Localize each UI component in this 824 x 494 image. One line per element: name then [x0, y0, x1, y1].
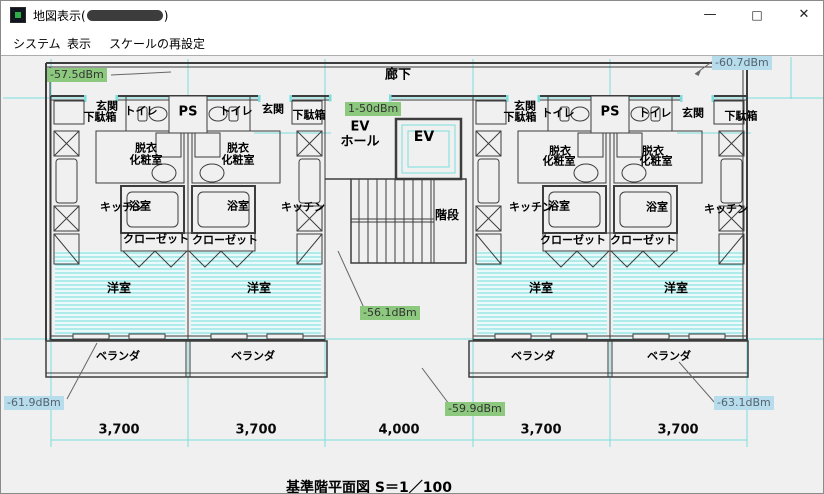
dimension-3: 4,000: [378, 423, 419, 438]
unit2-kitchen-label: キッチン: [281, 202, 325, 213]
unit4-kesho-label: 化粧室: [640, 156, 673, 167]
unit2-getabako-label: 下駄箱: [293, 110, 326, 121]
apartment-units: [51, 95, 747, 341]
verandas: [46, 341, 748, 377]
ev-shaft: [396, 119, 461, 179]
sheet-title: 基準階平面図 S＝1／100: [286, 477, 452, 494]
corridor-label: 廊下: [385, 69, 411, 82]
unit3-kesho-label: 化粧室: [543, 156, 576, 167]
window-title: 地図表示(): [33, 7, 168, 24]
unit4-toilet-label: トイレ: [639, 108, 672, 119]
unit4-closet-label: クローゼット: [610, 235, 676, 246]
dimension-5: 3,700: [657, 423, 698, 438]
unit2-toilet-label: トイレ: [220, 106, 253, 117]
measurement-chip-1: -57.5dBm: [47, 68, 107, 82]
measurement-chip-4: -56.1dBm: [360, 306, 420, 320]
unit3-getabako-label: 下駄箱: [504, 112, 537, 123]
ev-hall-label-line1: EV: [351, 121, 370, 134]
menu-system[interactable]: システム: [13, 35, 61, 52]
unit4-bath-label: 浴室: [646, 202, 668, 213]
maximize-icon: □: [751, 8, 762, 22]
unit1-veranda-label: ベランダ: [96, 351, 140, 362]
maximize-button[interactable]: □: [734, 1, 780, 29]
unit3-kitchen-label: キッチン: [509, 202, 553, 213]
unit3-bath-label: 浴室: [548, 201, 570, 212]
measurement-chip-5: -59.9dBm: [445, 402, 505, 416]
unit1-getabako-label: 下駄箱: [84, 112, 117, 123]
unit3-yoshitsu-label: 洋室: [529, 282, 553, 294]
unit1-closet-label: クローゼット: [123, 234, 189, 245]
unit2-closet-label: クローゼット: [192, 235, 258, 246]
elevator-label: EV: [414, 130, 434, 144]
unit1-yoshitsu-label: 洋室: [107, 282, 131, 294]
measurement-chip-3: -60.7dBm: [712, 56, 772, 70]
unit2-bath-label: 浴室: [227, 201, 249, 212]
unit2-genkan-label: 玄関: [262, 104, 284, 115]
core: [325, 94, 473, 263]
unit2-veranda-label: ベランダ: [231, 351, 275, 362]
measurement-chip-7: -63.1dBm: [714, 396, 774, 410]
unit3-closet-label: クローゼット: [540, 235, 606, 246]
ps-label-left: PS: [179, 106, 198, 119]
window-title-suffix: ): [164, 9, 169, 23]
menubar: システム 表示 スケールの再設定: [1, 29, 823, 56]
unit3-veranda-label: ベランダ: [511, 351, 555, 362]
unit4-genkan-label: 玄関: [682, 108, 704, 119]
ev-hall-label-line2: ホール: [340, 136, 379, 149]
unit2-kesho-label: 化粧室: [222, 155, 255, 166]
map-display-window: 地図表示() — □ ✕ システム 表示 スケールの再設定: [0, 0, 824, 494]
minimize-button[interactable]: —: [687, 1, 733, 29]
close-button[interactable]: ✕: [781, 1, 824, 29]
minimize-icon: —: [704, 7, 717, 22]
title-redaction: [87, 10, 163, 21]
close-icon: ✕: [799, 7, 810, 22]
unit3-toilet-label: トイレ: [542, 108, 575, 119]
unit1-bath-label: 浴室: [129, 201, 151, 212]
dimension-1: 3,700: [98, 423, 139, 438]
unit2-datsui-label: 脱衣: [227, 143, 249, 154]
titlebar: 地図表示() — □ ✕: [1, 1, 823, 29]
unit1-toilet-label: トイレ: [125, 106, 158, 117]
menu-view[interactable]: 表示: [67, 35, 91, 52]
measurement-chip-2: 1-50dBm: [345, 102, 401, 116]
ps-label-right: PS: [601, 106, 620, 119]
dimension-2: 3,700: [235, 423, 276, 438]
app-icon: [10, 7, 26, 23]
unit4-yoshitsu-label: 洋室: [664, 282, 688, 294]
unit1-kesho-label: 化粧室: [130, 155, 163, 166]
app-icon-glyph: [13, 10, 23, 20]
unit4-veranda-label: ベランダ: [647, 351, 691, 362]
dimension-4: 3,700: [520, 423, 561, 438]
unit4-getabako-label: 下駄箱: [725, 111, 758, 122]
map-canvas[interactable]: 廊下 玄関 下駄箱 トイレ 脱衣 化粧室 キッチン 浴室 クローゼット 洋室 ベ…: [1, 56, 824, 494]
unit2-yoshitsu-label: 洋室: [247, 282, 271, 294]
menu-rescale[interactable]: スケールの再設定: [109, 35, 205, 52]
window-title-prefix: 地図表示(: [33, 9, 86, 23]
unit4-kitchen-label: キッチン: [704, 204, 748, 215]
unit1-datsui-label: 脱衣: [135, 143, 157, 154]
stairs-label: 階段: [435, 209, 459, 221]
measurement-chip-6: -61.9dBm: [4, 396, 64, 410]
